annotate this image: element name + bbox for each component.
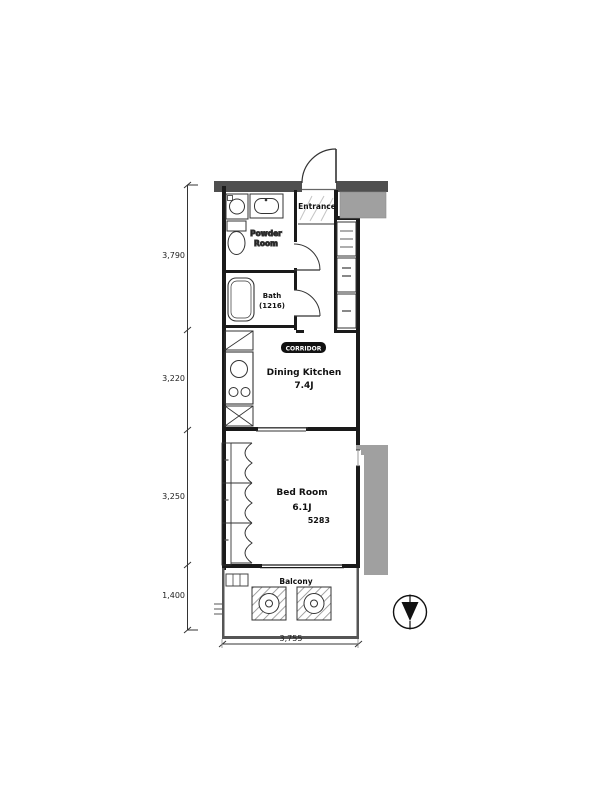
corridor-badge-label: CORRIDOR xyxy=(286,346,322,353)
washing-machine-icon xyxy=(226,194,248,219)
bath-label-line1: Bath xyxy=(263,292,281,300)
meter-box-icon xyxy=(337,258,356,292)
dim-label-1: 3,790 xyxy=(162,251,185,260)
bottom-dimension-label: 3,755 xyxy=(280,634,303,643)
dim-label-2: 3,220 xyxy=(162,374,185,383)
closet-icon xyxy=(222,443,252,565)
dim-label-3: 3,250 xyxy=(162,492,185,501)
dining-kitchen-label: Dining Kitchen xyxy=(267,368,342,378)
kitchen-counter-icon xyxy=(225,352,253,404)
bedroom: Bed Room 6.1J 5283 xyxy=(222,443,361,565)
entrance-porch xyxy=(340,192,386,218)
bedroom-label: Bed Room xyxy=(276,488,327,498)
side-window xyxy=(355,450,361,466)
powder-room-door-arc xyxy=(294,244,320,270)
bath-door-arc xyxy=(294,290,320,316)
storage-shelf-icon xyxy=(225,331,253,350)
left-dimension-labels: 3,790 3,220 3,250 1,400 xyxy=(162,251,185,600)
bath-room: Bath (1216) xyxy=(228,278,285,321)
hatch-box-icon xyxy=(226,574,248,586)
entrance-hall: Entrance xyxy=(298,196,336,224)
dining-kitchen-size: 7.4J xyxy=(294,381,313,391)
bath-label-line2: (1216) xyxy=(259,302,285,310)
floor-plan-page: Entrance xyxy=(0,0,600,800)
corridor-badge: CORRIDOR xyxy=(281,342,326,353)
dim-label-4: 1,400 xyxy=(162,591,185,600)
left-dimension-line xyxy=(184,182,198,633)
bathtub-icon xyxy=(228,278,254,321)
powder-room: Powder Room xyxy=(226,194,283,255)
ac-outdoor-unit-icon xyxy=(297,587,331,620)
entrance-door-arc xyxy=(302,149,336,183)
vanity-sink-icon xyxy=(250,194,283,218)
refrigerator-space-icon xyxy=(225,406,253,426)
bedroom-sub-number: 5283 xyxy=(308,516,330,525)
side-shade-strip xyxy=(364,445,388,575)
shaded-common-areas xyxy=(340,192,388,575)
sliding-door-dk-bedroom xyxy=(256,428,308,431)
interior-walls xyxy=(222,190,360,431)
utility-column xyxy=(337,222,356,328)
bedroom-size: 6.1J xyxy=(292,503,311,513)
toilet-icon xyxy=(227,221,246,255)
ac-outdoor-unit-icon xyxy=(252,587,286,620)
entrance-label: Entrance xyxy=(298,202,336,211)
balcony: Balcony xyxy=(214,568,359,639)
powder-room-label-line2: Room xyxy=(254,239,278,248)
compass-north-arrow-icon xyxy=(394,595,427,630)
balcony-label: Balcony xyxy=(279,577,312,586)
floor-plan-drawing: Entrance xyxy=(0,0,600,800)
powder-room-label-line1: Powder xyxy=(250,229,282,238)
